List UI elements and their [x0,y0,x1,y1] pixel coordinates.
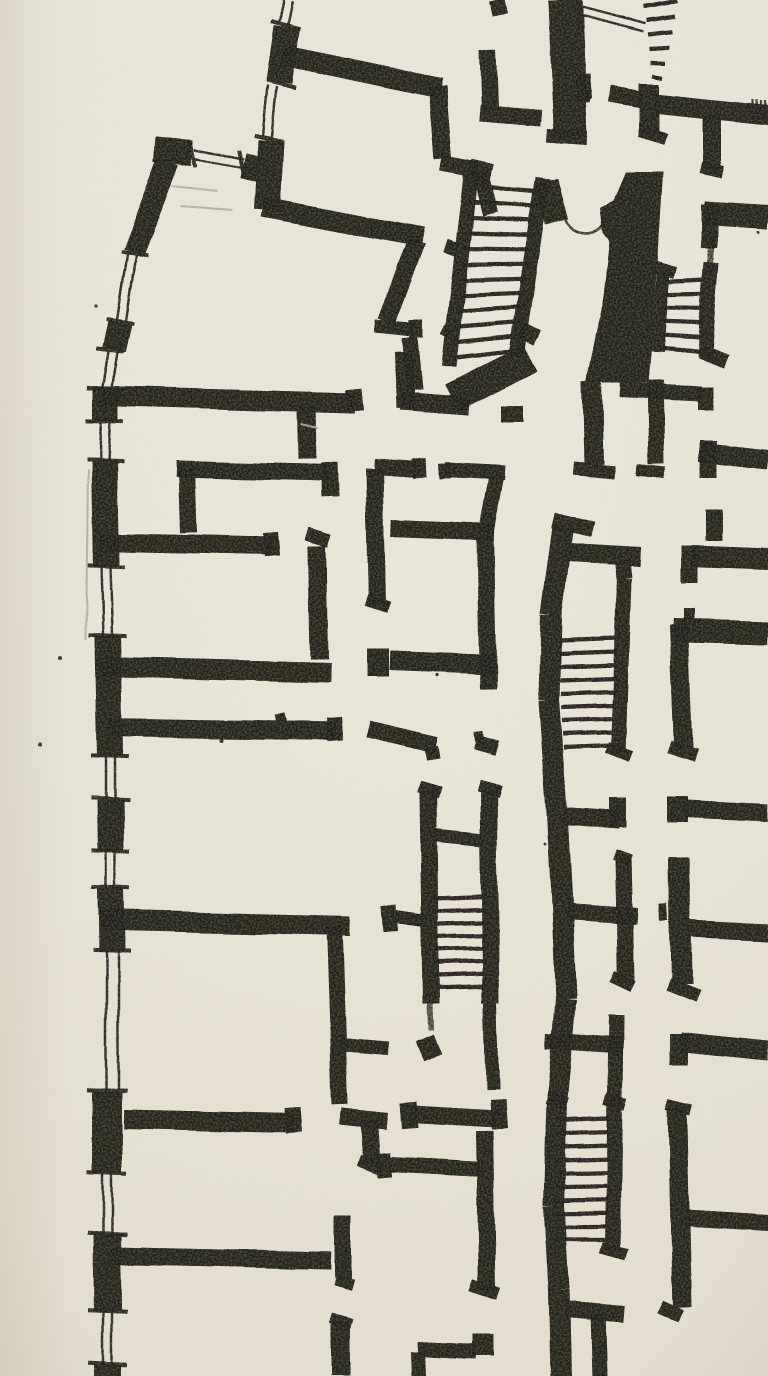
floor-plan-drawing [0,0,768,1376]
paper-vignette [0,0,768,1376]
sketch-page: Hand-drawn architectural floor plan sket… [0,0,768,1376]
